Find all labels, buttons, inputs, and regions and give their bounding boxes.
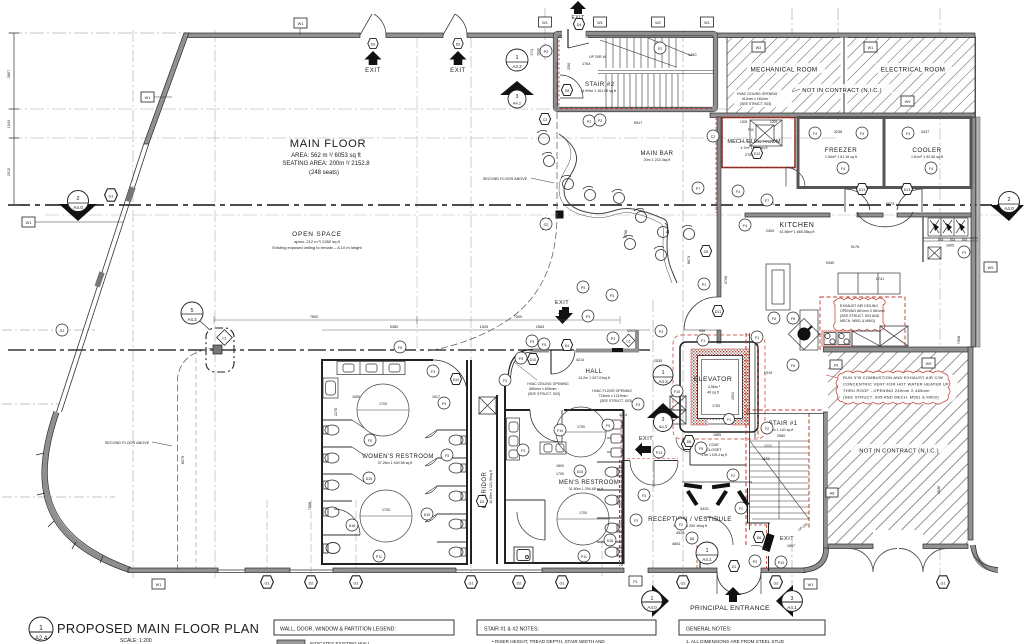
svg-text:W2: W2 (655, 21, 661, 25)
svg-text:RECEPTION / VESTIBULE: RECEPTION / VESTIBULE (648, 516, 732, 523)
svg-text:2: 2 (76, 196, 79, 202)
svg-text:W1: W1 (868, 46, 874, 50)
svg-text:SECOND FLOOR ABOVE: SECOND FLOOR ABOVE (483, 177, 528, 181)
svg-text:P3: P3 (586, 315, 590, 319)
svg-text:1525: 1525 (480, 325, 488, 329)
svg-text:HVAC CEILING OPENING: HVAC CEILING OPENING (737, 92, 778, 96)
svg-text:1221: 1221 (764, 444, 772, 448)
svg-text:D11: D11 (715, 310, 721, 314)
svg-text:F4: F4 (906, 132, 910, 136)
svg-text:1700: 1700 (379, 402, 387, 406)
svg-text:7908: 7908 (957, 336, 961, 344)
svg-text:F10: F10 (674, 390, 680, 394)
svg-text:1700: 1700 (577, 425, 585, 429)
svg-text:9340: 9340 (826, 261, 834, 265)
svg-text:P10: P10 (748, 128, 754, 132)
svg-text:THRU ROOF - OPENING 240mm X 46: THRU ROOF - OPENING 240mm X 465mm (843, 388, 930, 393)
svg-text:G1: G1 (468, 582, 473, 586)
svg-text:A4.2: A4.2 (513, 101, 522, 106)
svg-text:Existing exposed ceiling to re: Existing exposed ceiling to remain – 8.1… (272, 245, 362, 250)
svg-text:KITCHEN: KITCHEN (780, 222, 815, 229)
svg-text:2563: 2563 (536, 325, 544, 329)
svg-text:A4.3: A4.3 (658, 379, 668, 384)
svg-text:D15: D15 (577, 470, 584, 474)
svg-text:4.56m ²: 4.56m ² (708, 385, 721, 389)
svg-text:PROPOSED MAIN FLOOR PLAN: PROPOSED MAIN FLOOR PLAN (57, 621, 259, 636)
svg-text:D16: D16 (607, 539, 614, 543)
svg-text:4936: 4936 (937, 486, 941, 494)
svg-text:D8: D8 (690, 537, 695, 541)
svg-text:2581: 2581 (567, 62, 571, 70)
svg-text:1. ALL DIMENSIONS ARE FROM ST: 1. ALL DIMENSIONS ARE FROM STEEL STUD (686, 639, 785, 644)
svg-text:1753: 1753 (712, 404, 720, 408)
svg-text:C2: C2 (711, 135, 716, 139)
svg-text:2711: 2711 (530, 48, 534, 55)
svg-text:8673: 8673 (687, 256, 691, 264)
svg-text:(SEE STRUCT. S05 AND MECH. M50: (SEE STRUCT. S05 AND MECH. M501 & M502) (843, 395, 939, 400)
svg-text:1: 1 (661, 370, 664, 376)
svg-text:1897: 1897 (787, 544, 795, 548)
svg-text:GENERAL NOTES:: GENERAL NOTES: (686, 627, 731, 633)
svg-text:1895: 1895 (946, 244, 954, 248)
svg-text:20m 1 215.3sq ft: 20m 1 215.3sq ft (644, 158, 671, 162)
svg-text:F6: F6 (834, 364, 838, 368)
svg-text:A4.1: A4.1 (787, 605, 797, 610)
svg-text:MAIN BAR: MAIN BAR (640, 151, 673, 157)
svg-text:1617: 1617 (432, 395, 440, 399)
svg-text:1764: 1764 (582, 62, 590, 66)
svg-text:W1: W1 (26, 221, 32, 225)
svg-text:2278: 2278 (334, 408, 338, 416)
svg-text:5176: 5176 (851, 245, 859, 249)
svg-text:A4.2: A4.2 (512, 64, 522, 69)
svg-text:P2: P2 (544, 50, 549, 54)
svg-text:3425: 3425 (700, 507, 708, 511)
svg-text:F4: F4 (841, 167, 845, 171)
svg-text:2531: 2531 (731, 392, 735, 400)
svg-text:2807: 2807 (7, 70, 11, 78)
svg-text:STAIR #1 & #2 NOTES:: STAIR #1 & #2 NOTES: (484, 627, 539, 633)
svg-text:6673: 6673 (886, 202, 894, 206)
svg-text:5: 5 (190, 308, 193, 314)
svg-text:939: 939 (699, 329, 705, 333)
svg-text:HVAC FLOOR OPENING: HVAC FLOOR OPENING (592, 389, 632, 393)
svg-text:713mm x 1219mm ·: 713mm x 1219mm · (598, 394, 629, 398)
svg-text:W1: W1 (704, 21, 710, 25)
svg-text:3706: 3706 (724, 276, 728, 284)
svg-text:F5: F5 (519, 357, 523, 361)
svg-text:W1: W1 (597, 21, 603, 25)
svg-text:EXIT: EXIT (365, 68, 381, 74)
svg-text:49 sq ft: 49 sq ft (707, 391, 719, 395)
svg-text:1.54m² 1 61.16 sq ft: 1.54m² 1 61.16 sq ft (825, 155, 857, 159)
svg-text:F5: F5 (530, 340, 534, 344)
svg-text:D1: D1 (732, 565, 737, 569)
svg-text:D10: D10 (530, 358, 537, 362)
svg-text:F7: F7 (765, 199, 769, 203)
svg-text:1319: 1319 (764, 371, 772, 375)
svg-text:F2: F2 (679, 523, 683, 527)
svg-text:D10: D10 (453, 378, 460, 382)
svg-text:F6: F6 (791, 317, 795, 321)
svg-text:11.09m 1 121.96sq ft: 11.09m 1 121.96sq ft (489, 470, 493, 504)
svg-text:14.2m 1 207.01sq ft: 14.2m 1 207.01sq ft (578, 376, 610, 380)
svg-text:37.26m 1 400.56 sq ft: 37.26m 1 400.56 sq ft (378, 461, 413, 465)
svg-text:1800: 1800 (556, 464, 564, 468)
svg-text:F3: F3 (636, 403, 640, 407)
svg-text:D2: D2 (309, 582, 314, 586)
svg-text:P2: P2 (658, 47, 662, 51)
svg-text:MECHANICAL ROOM: MECHANICAL ROOM (751, 67, 818, 74)
svg-text:EXIT: EXIT (780, 536, 794, 542)
svg-text:(SEE STRUCT. S03): (SEE STRUCT. S03) (600, 399, 632, 403)
svg-text:2535: 2535 (654, 359, 662, 363)
svg-text:P1: P1 (633, 580, 638, 584)
svg-text:HALL: HALL (585, 369, 602, 375)
svg-text:D13: D13 (859, 188, 866, 192)
svg-text:aprox. 212 m ²/ 2282 sq ft: aprox. 212 m ²/ 2282 sq ft (294, 239, 340, 244)
svg-text:CLOSET: CLOSET (706, 448, 722, 452)
svg-text:SEATING AREA: 200m ²/ 2152.8: SEATING AREA: 200m ²/ 2152.8 (282, 161, 370, 167)
svg-text:P5: P5 (581, 286, 585, 290)
svg-text:PRINCIPAL ENTRANCE: PRINCIPAL ENTRANCE (690, 605, 770, 612)
svg-text:P3: P3 (659, 330, 663, 334)
svg-text:3: 3 (516, 94, 519, 100)
svg-text:G8: G8 (704, 250, 709, 254)
svg-text:F3: F3 (642, 494, 646, 498)
svg-text:612mm x 161mm ·: 612mm x 161mm · (742, 97, 770, 101)
svg-text:MECH. M501 & M502): MECH. M501 & M502) (840, 319, 875, 323)
svg-text:P3: P3 (753, 560, 757, 564)
svg-text:D12: D12 (754, 152, 761, 156)
svg-text:61.56m² 1 665.06sq ft: 61.56m² 1 665.06sq ft (780, 230, 815, 234)
svg-text:4529: 4529 (676, 531, 684, 535)
svg-text:P2: P2 (598, 119, 602, 123)
svg-text:D16: D16 (349, 524, 356, 528)
svg-text:STAIR #2: STAIR #2 (585, 82, 615, 88)
svg-text:A4.0: A4.0 (1004, 206, 1014, 212)
svg-text:2: 2 (1007, 197, 1010, 203)
svg-text:F2: F2 (731, 474, 735, 478)
svg-text:F5: F5 (398, 346, 402, 350)
svg-text:F4: F4 (813, 132, 817, 136)
svg-text:1700: 1700 (382, 508, 390, 512)
svg-text:1208: 1208 (740, 120, 747, 124)
svg-text:2912: 2912 (7, 168, 11, 176)
svg-text:(SEE STRUCT. S03): (SEE STRUCT. S03) (740, 102, 771, 106)
svg-text:660mm x 609mm ·: 660mm x 609mm · (529, 387, 558, 391)
svg-text:1659: 1659 (352, 395, 360, 399)
svg-text:F5: F5 (542, 343, 546, 347)
svg-text:COAT: COAT (709, 443, 720, 447)
svg-text:D4: D4 (565, 344, 570, 348)
svg-text:P11: P11 (581, 555, 587, 559)
svg-text:D15: D15 (424, 513, 431, 517)
svg-text:1700: 1700 (556, 472, 564, 476)
svg-text:W1: W1 (156, 583, 162, 587)
svg-text:1: 1 (39, 625, 43, 632)
svg-text:W9: W9 (926, 362, 932, 366)
svg-text:P13: P13 (656, 451, 662, 455)
svg-text:F1: F1 (727, 418, 731, 422)
svg-text:SCALE: 1:200: SCALE: 1:200 (120, 638, 152, 644)
svg-text:2400: 2400 (766, 229, 774, 233)
svg-text:D3: D3 (480, 500, 485, 504)
svg-text:CONCENTRIC VENT FOR HOT WATER: CONCENTRIC VENT FOR HOT WATER HEATER UP (843, 382, 949, 387)
svg-text:3: 3 (791, 596, 794, 602)
svg-text:D6: D6 (687, 440, 692, 444)
svg-text:D13: D13 (904, 188, 911, 192)
svg-text:UP 20R W: UP 20R W (589, 55, 607, 59)
svg-text:F2: F2 (765, 427, 769, 431)
svg-text:WOMEN'S RESTROOM: WOMEN'S RESTROOM (362, 454, 434, 460)
svg-text:NOT IN CONTRACT (N.I.C.): NOT IN CONTRACT (N.I.C.) (859, 449, 939, 455)
svg-text:C1: C1 (222, 337, 227, 341)
svg-text:8079: 8079 (181, 456, 185, 464)
svg-text:OPENING 661mm X 661mm: OPENING 661mm X 661mm (840, 309, 885, 313)
svg-text:1700: 1700 (579, 511, 587, 515)
svg-text:D2: D2 (517, 582, 522, 586)
svg-text:F3: F3 (521, 449, 525, 453)
svg-text:MAIN FLOOR: MAIN FLOOR (290, 138, 367, 150)
svg-text:SECOND FLOOR ABOVE: SECOND FLOOR ABOVE (105, 441, 150, 445)
svg-text:A4.0: A4.0 (73, 205, 83, 211)
svg-text:4214: 4214 (576, 358, 584, 362)
svg-text:F4: F4 (860, 132, 864, 136)
svg-text:P2: P2 (587, 120, 591, 124)
svg-text:3236: 3236 (834, 130, 842, 134)
svg-text:1: 1 (705, 548, 708, 554)
svg-text:NOT IN CONTRACT (N.I.C.): NOT IN CONTRACT (N.I.C.) (802, 88, 882, 94)
svg-text:W1: W1 (298, 22, 304, 26)
svg-text:WALL, DOOR, WINDOW & PARTITION: WALL, DOOR, WINDOW & PARTITION LEGEND: (280, 627, 396, 633)
svg-text:1: 1 (651, 596, 654, 602)
svg-text:3: 3 (662, 417, 665, 423)
svg-text:F5: F5 (445, 454, 449, 458)
svg-text:D4: D4 (577, 23, 582, 27)
svg-text:G2: G2 (773, 582, 778, 586)
svg-text:F6: F6 (772, 317, 776, 321)
svg-text:P7: P7 (696, 187, 700, 191)
svg-text:A4.3: A4.3 (659, 424, 668, 429)
svg-text:A4.0: A4.0 (647, 605, 657, 610)
svg-text:(SEE STRUCT. S03 AND: (SEE STRUCT. S03 AND (840, 314, 880, 318)
svg-text:1102: 1102 (762, 457, 770, 461)
svg-text:AREA: 562 m ²/ 6053 sq ft: AREA: 562 m ²/ 6053 sq ft (291, 153, 361, 159)
svg-text:F3: F3 (634, 519, 638, 523)
svg-text:W9: W9 (988, 266, 994, 270)
svg-text:F1: F1 (755, 336, 759, 340)
svg-text:1685: 1685 (713, 433, 721, 437)
svg-text:• RISER HEIGHT, TREAD DEPTH: • RISER HEIGHT, TREAD DEPTH, STAIR WIDTH… (492, 639, 605, 644)
svg-text:5917: 5917 (634, 121, 642, 125)
svg-text:P3: P3 (610, 294, 614, 298)
svg-text:G1: G1 (264, 582, 269, 586)
svg-text:F5: F5 (368, 439, 372, 443)
svg-text:OPEN SPACE: OPEN SPACE (292, 231, 342, 238)
svg-text:4681: 4681 (672, 542, 680, 546)
svg-text:W2: W2 (756, 46, 762, 50)
svg-text:MEN'S RESTROOM: MEN'S RESTROOM (559, 480, 619, 486)
svg-text:D5: D5 (565, 89, 570, 93)
svg-text:EXIT: EXIT (555, 300, 569, 306)
svg-text:818: 818 (938, 238, 944, 242)
svg-text:G1: G1 (108, 195, 113, 199)
svg-text:F5: F5 (699, 447, 703, 451)
svg-text:RUN 3"Ø COMBUSTION AND EXHAUST: RUN 3"Ø COMBUSTION AND EXHAUST AIR C/W (843, 375, 943, 380)
svg-text:F4: F4 (743, 224, 747, 228)
svg-text:1741: 1741 (876, 277, 884, 281)
svg-text:P11: P11 (376, 555, 382, 559)
svg-text:1044: 1044 (7, 120, 11, 128)
svg-text:7500: 7500 (514, 315, 522, 319)
svg-text:3437: 3437 (921, 130, 929, 134)
svg-text:1.61m² 1 52.56 sq ft: 1.61m² 1 52.56 sq ft (911, 155, 943, 159)
svg-text:D15: D15 (366, 477, 373, 481)
svg-text:W9: W9 (905, 100, 911, 104)
svg-text:1205: 1205 (770, 120, 777, 124)
svg-text:COOLER: COOLER (912, 147, 941, 154)
svg-text:1: 1 (515, 55, 518, 61)
svg-text:A4.3: A4.3 (187, 317, 197, 322)
svg-text:F6: F6 (791, 364, 795, 368)
svg-text:F3: F3 (431, 370, 435, 374)
svg-text:7500: 7500 (310, 315, 318, 319)
svg-text:W1: W1 (542, 21, 548, 25)
svg-text:4214: 4214 (619, 413, 627, 417)
svg-text:D9: D9 (456, 43, 461, 47)
svg-text:G2: G2 (680, 582, 685, 586)
svg-text:F4: F4 (929, 167, 933, 171)
svg-text:ELECTRICAL ROOM: ELECTRICAL ROOM (881, 67, 945, 74)
svg-text:C2: C2 (543, 118, 548, 122)
svg-text:2560: 2560 (777, 434, 785, 438)
svg-text:D6: D6 (757, 536, 762, 540)
svg-text:FREEZER: FREEZER (825, 147, 857, 154)
svg-text:HVAC CEILING OPENING: HVAC CEILING OPENING (527, 382, 569, 386)
svg-text:P1: P1 (702, 283, 706, 287)
svg-text:A4.1: A4.1 (702, 557, 712, 562)
svg-text:1450: 1450 (688, 53, 696, 57)
svg-text:EXIT: EXIT (639, 436, 653, 442)
svg-text:(4.9/9m 1 161.05 sq ft: (4.9/9m 1 161.05 sq ft (581, 89, 616, 93)
svg-text:4.0m 1 100.4 sq ft: 4.0m 1 100.4 sq ft (701, 453, 727, 457)
svg-text:G2: G2 (544, 223, 549, 227)
svg-text:F4: F4 (736, 190, 740, 194)
svg-text:(248 seats): (248 seats) (309, 170, 339, 176)
svg-text:F3: F3 (962, 251, 966, 255)
svg-text:5380: 5380 (390, 325, 398, 329)
svg-text:F1: F1 (701, 339, 705, 343)
svg-text:4302: 4302 (627, 329, 635, 333)
svg-text:G1: G1 (60, 329, 65, 333)
svg-text:D9: D9 (371, 43, 376, 47)
svg-text:F5: F5 (442, 402, 446, 406)
svg-text:P10: P10 (778, 561, 784, 565)
svg-text:A2.4: A2.4 (35, 636, 48, 642)
svg-text:G1: G1 (353, 582, 358, 586)
svg-text:A8: A8 (830, 492, 835, 496)
svg-text:818: 818 (950, 238, 956, 242)
svg-text:7608: 7608 (308, 502, 312, 510)
svg-text:8798: 8798 (624, 230, 628, 238)
svg-text:F10: F10 (557, 429, 563, 433)
svg-text:W1: W1 (145, 96, 151, 100)
svg-text:F2: F2 (739, 507, 743, 511)
svg-text:F9: F9 (606, 424, 610, 428)
svg-text:F3: F3 (503, 379, 507, 383)
svg-text:G1: G1 (940, 582, 945, 586)
svg-text:C1: C1 (626, 340, 630, 344)
svg-text:818: 818 (962, 238, 968, 242)
svg-text:W1: W1 (808, 583, 814, 587)
svg-text:(SEE STRUCT. S03): (SEE STRUCT. S03) (528, 392, 560, 396)
svg-text:P3: P3 (611, 337, 615, 341)
svg-text:G1: G1 (559, 582, 564, 586)
svg-text:EXHAUST AIR CEILING: EXHAUST AIR CEILING (840, 304, 878, 308)
svg-text:EXIT: EXIT (450, 68, 466, 74)
